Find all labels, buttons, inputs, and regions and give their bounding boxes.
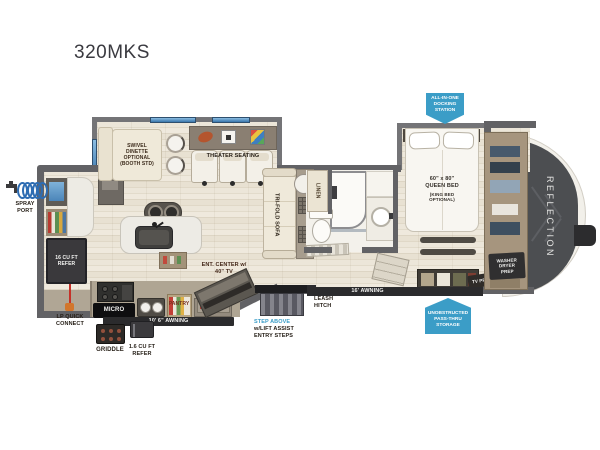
shower: [330, 171, 367, 229]
rear-sink: [49, 182, 64, 201]
hitch-pin: [574, 225, 596, 246]
bed-label-group: 60" x 80" QUEEN BED (KING BED OPTIONAL): [409, 176, 475, 203]
wall: [393, 170, 398, 253]
dresser-item: [453, 273, 466, 286]
wall: [304, 247, 332, 253]
leash-hitch-label: LEASH HITCH: [314, 296, 352, 310]
wardrobe-shelf: [492, 204, 518, 215]
microwave: MICRO: [93, 303, 135, 318]
island-sink-basin: [139, 230, 169, 245]
dresser-item: [421, 273, 434, 286]
range-stove: [97, 282, 134, 302]
microwave-label: MICRO: [104, 307, 125, 315]
step-above-detail-label: w/LIFT ASSIST ENTRY STEPS: [254, 326, 314, 340]
window: [150, 117, 196, 123]
washer-dryer-prep: WASHER DRYER PREP: [488, 252, 525, 280]
refrigerator-label: 16 CU FT REFER: [55, 255, 77, 268]
refrigerator: 16 CU FT REFER: [46, 238, 87, 284]
dresser-item: [437, 273, 450, 286]
spray-port-icon: [4, 179, 50, 201]
entry-steps-label-group: STEP ABOVE w/LIFT ASSIST ENTRY STEPS: [254, 319, 314, 340]
swivel-chair: [166, 156, 185, 175]
seat-foot: [202, 181, 207, 186]
pillow: [409, 131, 441, 149]
washer-dryer-label: WASHER DRYER PREP: [496, 257, 517, 275]
spray-port-label: SPRAY PORT: [2, 201, 48, 215]
lp-connector: [65, 303, 74, 311]
outdoor-refer-label: 1.6 CU FT REFER: [122, 344, 162, 358]
bed-slide-rail: [420, 237, 476, 243]
brand-logo: REFLECTION: [542, 158, 558, 276]
pass-thru-storage-badge: UNOBSTRUCTED PASS-THRU STORAGE: [425, 298, 471, 334]
rear-shelf-dishes: [48, 212, 66, 233]
linen-closet: LINEN: [307, 170, 328, 212]
step-above-label: STEP ABOVE: [254, 319, 314, 326]
decor-art: [250, 129, 265, 145]
sink-basin: [152, 302, 163, 313]
rear-countertop: [67, 177, 94, 237]
bath-sink: [371, 207, 391, 227]
floorplan-title: 320MKS: [74, 42, 150, 64]
pillow: [443, 131, 475, 149]
sofa-label: TRI-FOLD SOFA: [268, 180, 284, 250]
dinette-table: SWIVEL DINETTE OPTIONAL (BOOTH STD): [112, 129, 162, 181]
docking-station-badge: ALL-IN-ONE DOCKING STATION: [426, 93, 464, 124]
wardrobe-shelf: [490, 146, 520, 157]
entry-steps: [260, 293, 304, 316]
entry-landing: [255, 285, 307, 293]
ent-center-label: ENT. CENTER w/ 40" TV: [192, 262, 256, 276]
pantry-label: PANTRY: [163, 301, 195, 307]
shower-glass: [330, 229, 367, 232]
toilet-bowl: [312, 219, 331, 243]
decor-frame: [221, 130, 236, 144]
window: [212, 117, 250, 123]
bed-size-label: 60" x 80" QUEEN BED: [409, 176, 475, 190]
bed-slide-rail: [420, 249, 476, 255]
wardrobe-drawer: [490, 279, 520, 288]
linen-label: LINEN: [314, 183, 320, 199]
swivel-chair: [166, 134, 185, 153]
cabinet-dishes: [163, 256, 167, 264]
main-awning: 16' AWNING: [307, 287, 483, 296]
griddle: [96, 324, 125, 344]
cabinet-dishes: [170, 256, 174, 264]
floorplan-image: REFLECTION 16 CU FT REFER SWIVEL DINETTE…: [0, 0, 600, 450]
sofa-armrest: [262, 250, 297, 259]
wardrobe-shelf: [490, 180, 520, 193]
bed-option-label: (KING BED OPTIONAL): [409, 192, 475, 203]
wardrobe-shelf: [490, 162, 520, 173]
theater-seating-label: THEATER SEATING: [190, 153, 276, 160]
dinette-label: SWIVEL DINETTE OPTIONAL (BOOTH STD): [120, 143, 154, 168]
dinette-bench: [98, 127, 113, 181]
door-awning-label: 10' 6" AWNING: [149, 318, 189, 325]
sink-basin: [140, 302, 151, 313]
cabinet-dishes: [177, 256, 181, 264]
wardrobe-shelf: [490, 222, 520, 235]
wall: [484, 121, 536, 128]
wall: [40, 165, 98, 172]
wall: [328, 170, 332, 214]
seat-foot: [230, 181, 235, 186]
rear-counter-appliance: [102, 181, 118, 190]
outdoor-refrigerator: [130, 321, 154, 338]
shower-fixture: [332, 186, 337, 199]
lp-quick-connect-label: LP QUICK CONNECT: [46, 314, 94, 328]
